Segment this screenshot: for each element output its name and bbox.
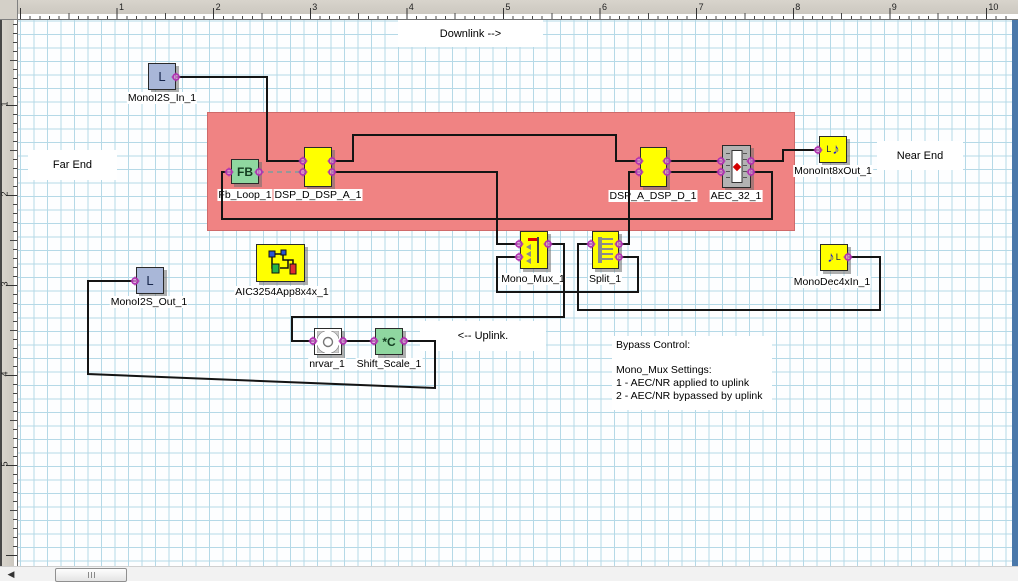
ruler-number: 5 (505, 2, 510, 12)
block-mono-i2s-out[interactable]: L (136, 267, 164, 294)
block-label: MonoI2S_Out_1 (110, 296, 188, 308)
block-label: MonoDec4xIn_1 (793, 276, 871, 288)
ruler-number: 4 (0, 371, 10, 376)
block-label: Split_1 (588, 273, 622, 285)
block-split[interactable] (592, 231, 619, 269)
block-aec-32[interactable] (722, 145, 751, 188)
annotation-uplink[interactable]: <-- Uplink. (420, 321, 546, 351)
block-aic3254[interactable] (256, 244, 305, 282)
ruler-number: 1 (119, 2, 124, 12)
ruler-corner (0, 0, 18, 20)
scrollbar-thumb[interactable] (55, 568, 127, 582)
horizontal-scrollbar[interactable]: ◀ (0, 566, 1018, 581)
ruler-number: 3 (312, 2, 317, 12)
music-note-icon: ♪ (827, 250, 835, 265)
block-glyph: L (158, 69, 165, 84)
fader-icon (723, 146, 750, 187)
block-shift-scale[interactable]: *C (375, 328, 403, 355)
block-label: MonoInt8xOut_1 (793, 165, 873, 177)
ruler-number: 1 (0, 101, 10, 106)
vertical-scrollbar[interactable] (1012, 20, 1018, 566)
nr-icon (317, 331, 339, 353)
block-label: nrvar_1 (308, 358, 346, 370)
ruler-number: 2 (0, 191, 10, 196)
ruler-number: 7 (699, 2, 704, 12)
block-label: Fb_Loop_1 (217, 189, 272, 201)
ruler-number: 4 (409, 2, 414, 12)
block-glyph: L (836, 253, 841, 262)
block-label: Mono_Mux_1 (500, 273, 566, 285)
block-dsp-a-dsp-d[interactable] (640, 147, 667, 187)
ruler-number: 10 (988, 2, 998, 12)
annotation-far-end[interactable]: Far End (28, 150, 117, 180)
ruler-number: 3 (0, 281, 10, 286)
mux-icon (521, 232, 547, 268)
block-label: DSP_A_DSP_D_1 (609, 190, 698, 202)
annotation-near-end[interactable]: Near End (877, 141, 963, 170)
ruler-number: 6 (602, 2, 607, 12)
ruler-number: 5 (0, 461, 10, 466)
annotation-bypass-control[interactable]: Bypass Control: Mono_Mux Settings: 1 - A… (612, 336, 772, 410)
block-nrvar[interactable] (314, 328, 342, 355)
ruler-number: 2 (216, 2, 221, 12)
block-glyph: L (826, 145, 831, 154)
block-dsp-d-dsp-a[interactable] (304, 147, 332, 187)
block-mono-int8x-out[interactable]: L ♪ (819, 136, 847, 163)
block-glyph: L (146, 273, 153, 288)
block-label: AIC3254App8x4x_1 (234, 286, 329, 298)
annotation-downlink[interactable]: Downlink --> (398, 20, 543, 47)
music-note-icon: ♪ (832, 142, 840, 157)
split-icon (593, 232, 618, 268)
block-label: AEC_32_1 (710, 190, 763, 202)
block-label: Shift_Scale_1 (356, 358, 423, 370)
block-label: MonoI2S_In_1 (127, 92, 197, 104)
scroll-left-arrow-icon[interactable]: ◀ (4, 569, 18, 580)
block-glyph: *C (382, 335, 395, 349)
ruler-number: 8 (795, 2, 800, 12)
block-label: DSP_D_DSP_A_1 (274, 189, 363, 201)
ruler-number: 9 (892, 2, 897, 12)
block-mono-mux[interactable] (520, 231, 548, 269)
flowchart-icon (260, 248, 302, 278)
block-glyph: FB (237, 165, 253, 179)
